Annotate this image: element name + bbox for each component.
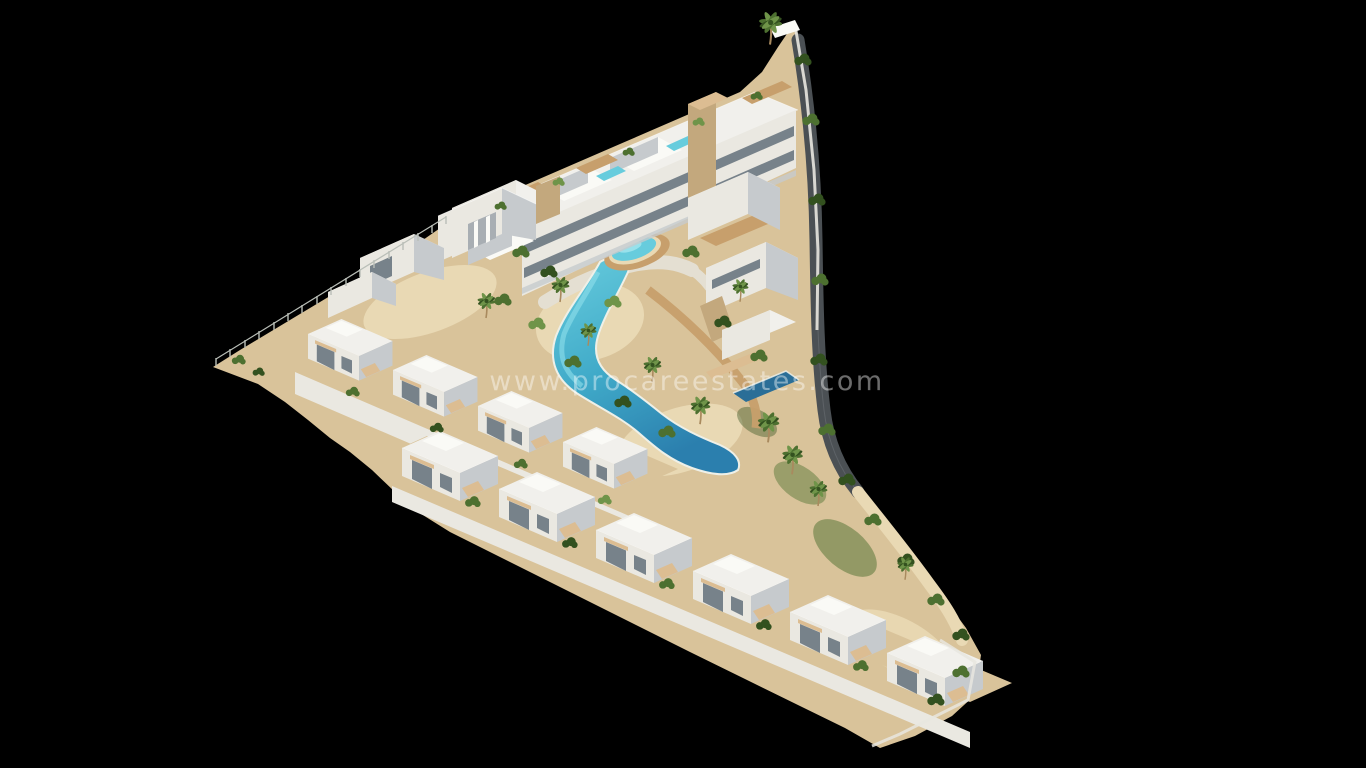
villa-arch-pillar bbox=[474, 220, 478, 248]
villa-arch-pillar bbox=[486, 215, 490, 243]
render-canvas: www.procareestates.com bbox=[0, 0, 1366, 768]
watermark-text: www.procareestates.com bbox=[489, 366, 884, 397]
site-render: www.procareestates.com bbox=[0, 0, 1366, 768]
